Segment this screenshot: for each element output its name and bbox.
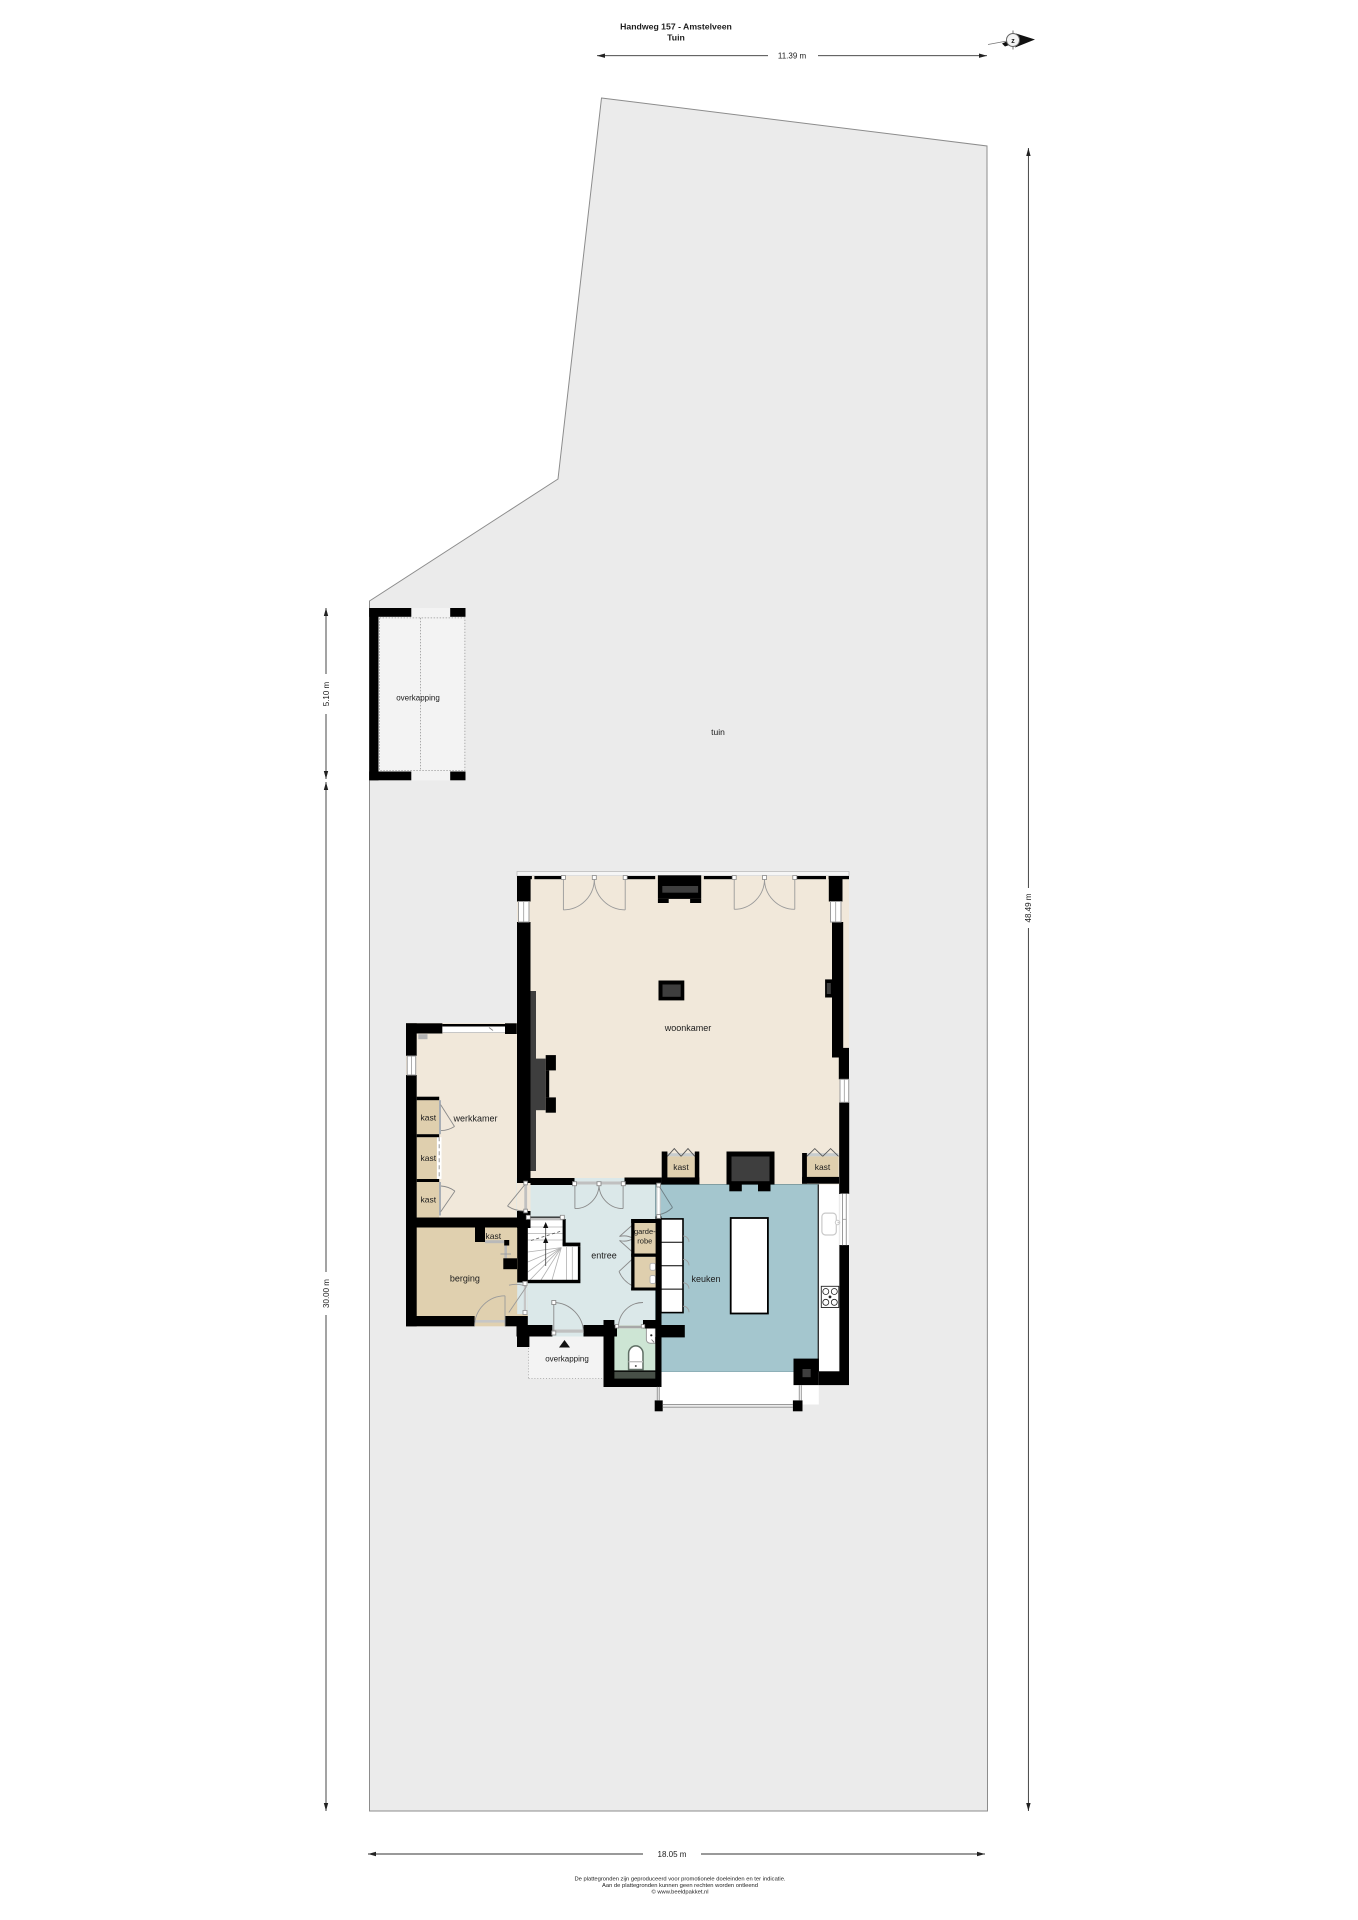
- svg-text:18.05 m: 18.05 m: [658, 1850, 687, 1859]
- svg-text:garde-: garde-: [634, 1227, 656, 1236]
- svg-text:keuken: keuken: [691, 1274, 720, 1284]
- svg-text:tuin: tuin: [711, 727, 725, 737]
- svg-text:Aan de plattegronden kunnen ge: Aan de plattegronden kunnen geen rechten…: [602, 1883, 758, 1889]
- svg-text:© www.beeldpakket.nl: © www.beeldpakket.nl: [651, 1889, 708, 1896]
- svg-text:entree: entree: [591, 1251, 617, 1261]
- svg-text:kast: kast: [673, 1162, 689, 1172]
- svg-text:z: z: [1011, 38, 1015, 45]
- svg-text:Tuin: Tuin: [667, 33, 685, 43]
- svg-text:woonkamer: woonkamer: [664, 1023, 712, 1033]
- svg-text:kast: kast: [421, 1195, 437, 1205]
- svg-text:De plattegronden zijn geproduc: De plattegronden zijn geproduceerd voor …: [574, 1877, 785, 1883]
- svg-text:kast: kast: [815, 1162, 831, 1172]
- svg-text:5.10 m: 5.10 m: [322, 681, 331, 706]
- svg-text:Handweg 157 - Amstelveen: Handweg 157 - Amstelveen: [620, 22, 732, 32]
- svg-text:30.00 m: 30.00 m: [322, 1279, 331, 1308]
- svg-text:robe: robe: [637, 1237, 652, 1246]
- svg-text:overkapping: overkapping: [396, 694, 440, 703]
- svg-text:werkkamer: werkkamer: [452, 1114, 497, 1124]
- svg-text:48.49 m: 48.49 m: [1024, 893, 1033, 922]
- svg-text:berging: berging: [450, 1273, 480, 1283]
- svg-text:11.39 m: 11.39 m: [778, 52, 807, 61]
- svg-text:overkapping: overkapping: [545, 1355, 589, 1364]
- svg-text:kast: kast: [486, 1231, 502, 1241]
- svg-text:kast: kast: [421, 1153, 437, 1163]
- svg-text:kast: kast: [421, 1113, 437, 1123]
